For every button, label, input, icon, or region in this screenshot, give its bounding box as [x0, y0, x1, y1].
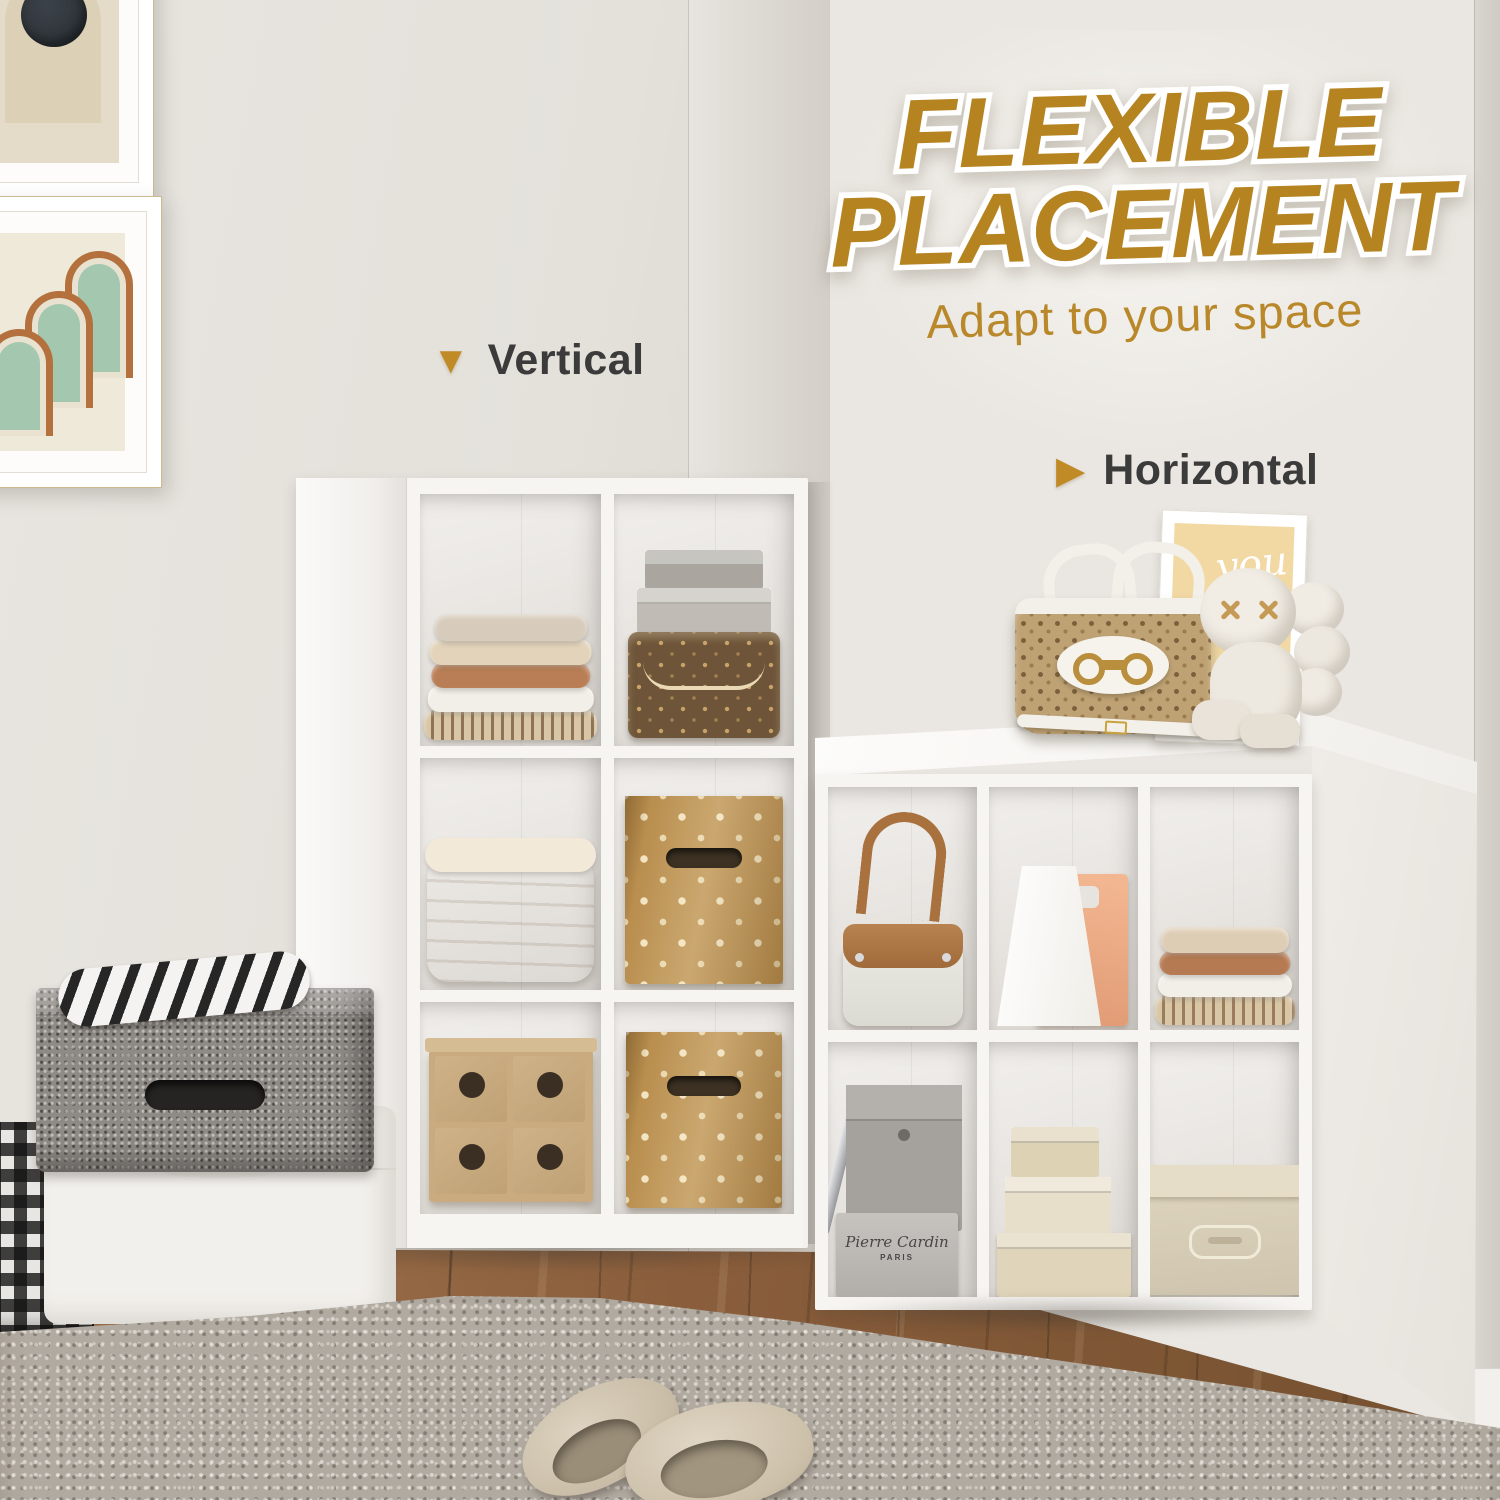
headline-fill-layer: PLACEMENT: [828, 159, 1456, 287]
shelf-front-face: Pierre Cardin PARIS: [815, 774, 1312, 1310]
cube-mini-drawers: [420, 1002, 601, 1214]
cube-polka-bin-middle: [614, 758, 794, 990]
cube-monogram-box: [614, 494, 794, 746]
green-arches-artwork: [0, 233, 125, 451]
horizontal-label: Horizontal: [1103, 446, 1318, 495]
monogram-storage-box: [628, 632, 780, 738]
bag-top-rim: [1015, 598, 1211, 614]
mini-drawer: [513, 1056, 585, 1122]
cube-folded-clothes-2: [1150, 787, 1299, 1030]
horizontal-annotation: ▶ Horizontal: [1056, 446, 1318, 495]
drawer-unit-top: [425, 1038, 597, 1052]
gold-polka-dot-bin: [626, 1032, 782, 1208]
gray-box-small: [645, 550, 763, 590]
triangle-down-icon: ▼: [432, 342, 470, 380]
basket-handle-cutout: [145, 1080, 265, 1110]
gray-box-large: [637, 588, 771, 634]
folded-tan-cloth: [429, 639, 592, 665]
handbag-handle: [855, 808, 950, 922]
cube-office-boxes: Pierre Cardin PARIS: [828, 1042, 977, 1297]
cube-folded-clothes: [420, 494, 601, 746]
product-lifestyle-photo: Pierre Cardin PARIS: [0, 0, 1500, 1500]
pierre-cardin-box: Pierre Cardin PARIS: [836, 1213, 958, 1297]
beige-box-medium: [1005, 1177, 1111, 1233]
mini-drawer: [513, 1128, 585, 1194]
wall-frame-arches-art: [0, 196, 162, 488]
beige-box-small: [1011, 1127, 1099, 1177]
box-handle-plate: [1189, 1225, 1261, 1259]
headline: FLEXIBLE FLEXIBLE PLACEMENT PLACEMENT Ad…: [814, 71, 1469, 352]
wall-frame-moon-art: [0, 0, 154, 198]
plush-x-eye: [1256, 598, 1280, 622]
headline-line-2: PLACEMENT PLACEMENT: [817, 167, 1467, 281]
folded-white-cloth: [1157, 973, 1291, 997]
folded-white-cloth: [427, 686, 594, 712]
fabric-storage-box: [1150, 1173, 1299, 1295]
vertical-label: Vertical: [488, 336, 645, 385]
plush-foot: [1240, 714, 1300, 748]
folded-beige-cardigan: [434, 614, 586, 641]
box-trim-handle-line: [643, 662, 765, 690]
folded-rust-sweater: [431, 663, 590, 688]
mini-drawer: [435, 1056, 507, 1122]
mini-drawer: [435, 1128, 507, 1194]
bag-logo-plate: [1057, 636, 1169, 694]
folded-striped-blanket: [1154, 995, 1294, 1025]
bag-body: [1015, 598, 1211, 734]
cube-tote-bags: [989, 787, 1138, 1030]
cube-lidded-box: [1150, 1042, 1299, 1297]
handbag-flap: [843, 924, 963, 968]
plush-toy: [1188, 568, 1348, 750]
wooden-drawer-unit: [429, 1050, 593, 1202]
vertical-annotation: ▼ Vertical: [432, 336, 645, 385]
folded-striped-blanket: [424, 710, 598, 740]
cube-knit-blanket: [420, 758, 601, 990]
slippers: [516, 1382, 816, 1500]
bin-handle-slot: [667, 1076, 741, 1096]
horizontal-shelf-floor-shadow: [821, 1296, 1321, 1332]
strap-buckle: [1105, 721, 1128, 735]
box-brand-sub: PARIS: [836, 1253, 958, 1262]
horsebit-bar: [1100, 660, 1126, 670]
cube-handbag: [828, 787, 977, 1030]
triangle-right-icon: ▶: [1056, 452, 1085, 490]
box-lid: [1150, 1165, 1299, 1197]
folded-knit-blanket: [427, 856, 594, 982]
bin-handle-slot: [666, 848, 742, 868]
horizontal-cube-shelf: Pierre Cardin PARIS: [815, 700, 1500, 1448]
gray-fabric-basket: [36, 988, 374, 1172]
beige-box-large: [997, 1233, 1131, 1297]
arch-graphic: [0, 329, 53, 436]
folded-rust-sweater: [1159, 951, 1290, 975]
cube-polka-bin-bottom: [614, 1002, 794, 1214]
cube-beige-boxes: [989, 1042, 1138, 1297]
folded-beige-cardigan: [1160, 927, 1288, 953]
gray-file-box: [846, 1085, 962, 1231]
plush-x-eye: [1218, 598, 1242, 622]
gold-polka-dot-bin: [625, 796, 783, 984]
arch-moon-artwork: [0, 0, 119, 163]
box-brand-script: Pierre Cardin: [836, 1233, 958, 1251]
horsebit-ring: [1121, 653, 1153, 685]
blanket-roll-edge: [425, 838, 595, 872]
